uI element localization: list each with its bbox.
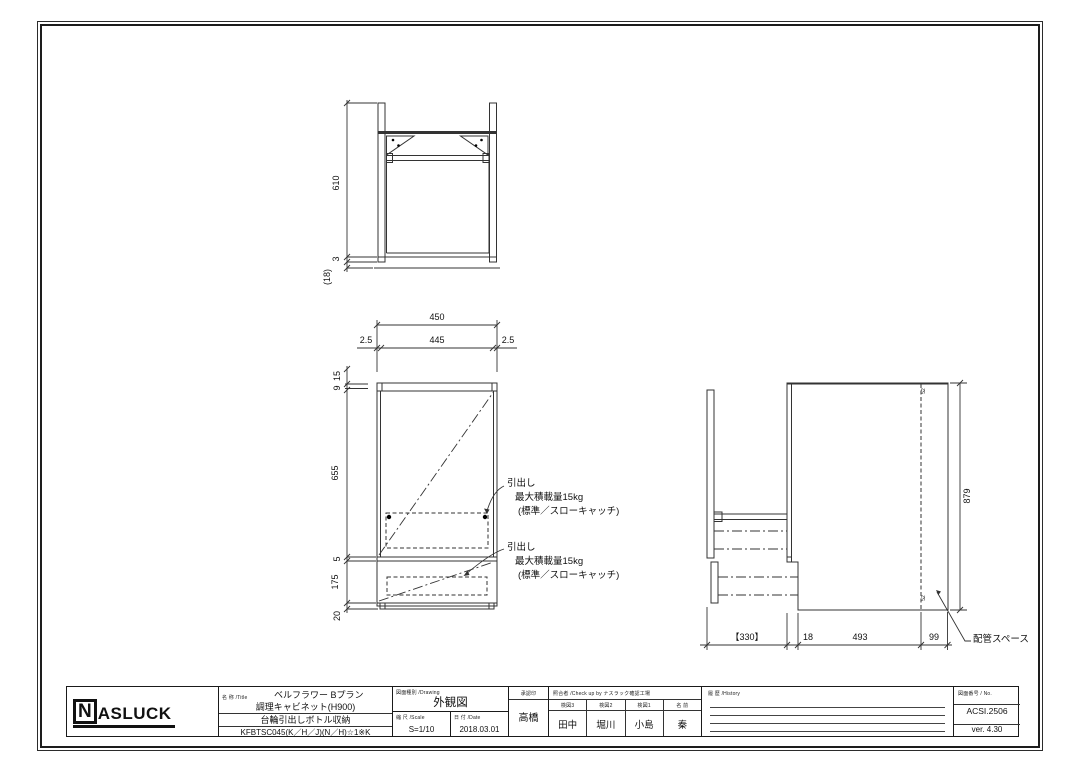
title-block: N ASLUCK 名 称 /Title ベルフラワー Bプラン 調理キャビネット… — [66, 686, 1019, 737]
number-separator — [954, 704, 1020, 705]
check-col-label: 検図2 — [587, 700, 624, 711]
dim-front-9: 9 — [332, 385, 342, 390]
check-col-label: 名 前 — [664, 700, 701, 711]
check-col-label: 検図3 — [549, 700, 586, 711]
pipe-space-label: 配管スペース — [973, 633, 1029, 647]
product-code: KFBTSC045(K／H／J)(N／H)☆1※K — [219, 727, 392, 739]
history-label: 履 歴 /History — [708, 690, 740, 697]
check-col-name: 秦 — [664, 711, 701, 736]
annotation-note: (標準／スローキャッチ) — [518, 505, 619, 519]
approval-label: 承認印 — [509, 687, 548, 700]
date-label: 日 付 /Date — [454, 714, 481, 721]
approval-cell: 承認印 高橋 — [509, 687, 549, 736]
check-col-3: 検図3 田中 — [549, 700, 587, 736]
history-row-line — [710, 731, 945, 732]
annotation-capacity: 最大積載量15kg — [515, 555, 619, 569]
dim-front-15: 15 — [332, 371, 342, 381]
dim-front-door: 655 — [330, 465, 340, 480]
drawing-type: 外観図 — [393, 694, 508, 710]
number-label: 図面番号 / No. — [958, 690, 992, 697]
check-cell: 照合者 /Check up by ナスラック確認工場 検図3 田中 検図2 堀川… — [549, 687, 702, 736]
dim-top-gap: 3 — [331, 256, 341, 261]
product-type: 調理キャビネット(H900) — [219, 701, 392, 714]
check-col-2: 検図2 堀川 — [587, 700, 625, 736]
front-view — [377, 383, 504, 609]
front-view-dimensions: 450 2.5 445 2.5 15 9 655 5 175 20 — [330, 312, 517, 621]
dim-front-gap: 5 — [332, 556, 342, 561]
dim-top-base: (18) — [322, 269, 332, 285]
dim-front-overall: 450 — [429, 312, 444, 322]
check-col-name: 堀川 — [587, 711, 624, 736]
tiny-note-top: 52 — [921, 388, 927, 394]
drawing-type-cell: 図面種別 /Drawing 外観図 縮 尺 /Scale S=1/10 日 付 … — [393, 687, 509, 736]
check-col-1: 検図1 小島 — [626, 700, 664, 736]
logo-cell: N ASLUCK — [67, 687, 219, 736]
approval-name: 高橋 — [509, 700, 548, 724]
side-view — [707, 383, 971, 641]
check-label: 照合者 /Check up by ナスラック確認工場 — [549, 687, 701, 700]
drawer-annotation-upper: 引出し 最大積載量15kg (標準／スローキャッチ) — [507, 477, 619, 519]
dim-side-depth: 493 — [852, 632, 867, 642]
dim-side-front-gap: 18 — [803, 632, 813, 642]
annotation-capacity: 最大積載量15kg — [515, 491, 619, 505]
name-label: 名 称 /Title — [222, 694, 247, 701]
drawing-version: ver. 4.30 — [954, 725, 1020, 734]
dim-front-left-edge: 2.5 — [360, 335, 373, 345]
history-row-line — [710, 707, 945, 708]
tiny-note-bottom: 52 — [921, 595, 927, 601]
history-row-line — [710, 715, 945, 716]
scale-value: S=1/10 — [393, 725, 450, 734]
history-cell: 履 歴 /History — [702, 687, 954, 736]
drawing-linework: 610 3 (18) — [0, 0, 1080, 764]
dim-front-center: 445 — [429, 335, 444, 345]
history-row-line — [710, 723, 945, 724]
nasluck-logo: N ASLUCK — [73, 699, 175, 728]
dim-side-height: 879 — [962, 488, 972, 503]
title-cell: 名 称 /Title ベルフラワー Bプラン 調理キャビネット(H900) 台輪… — [219, 687, 393, 736]
product-series: ベルフラワー Bプラン — [247, 688, 390, 701]
dim-side-pipe: 99 — [929, 632, 939, 642]
check-col-label: 検図1 — [626, 700, 663, 711]
drawing-number-cell: 図面番号 / No. ACSI.2506 ver. 4.30 — [954, 687, 1020, 736]
scale-label: 縮 尺 /Scale — [396, 714, 425, 721]
check-col-name: 田中 — [549, 711, 586, 736]
drawer-annotation-lower: 引出し 最大積載量15kg (標準／スローキャッチ) — [507, 541, 619, 583]
logo-letter-n: N — [73, 699, 97, 724]
date-value: 2018.03.01 — [451, 725, 508, 734]
dim-top-height: 610 — [331, 175, 341, 190]
drawing-sheet: 610 3 (18) — [0, 0, 1080, 764]
logo-wordmark: ASLUCK — [98, 704, 172, 724]
annotation-note: (標準／スローキャッチ) — [518, 569, 619, 583]
dim-front-base: 20 — [332, 611, 342, 621]
top-view-dimensions: 610 3 (18) — [322, 100, 377, 285]
annotation-title: 引出し — [507, 477, 619, 491]
check-col-name: 小島 — [626, 711, 663, 736]
product-desc: 台輪引出しボトル収納 — [219, 714, 392, 727]
top-view — [374, 103, 500, 268]
dim-front-right-edge: 2.5 — [502, 335, 515, 345]
check-col-name0: 名 前 秦 — [664, 700, 701, 736]
annotation-title: 引出し — [507, 541, 619, 555]
dim-side-pullout: 【330】 — [730, 632, 763, 642]
dim-front-drawer: 175 — [330, 574, 340, 589]
drawing-number: ACSI.2506 — [954, 706, 1020, 716]
